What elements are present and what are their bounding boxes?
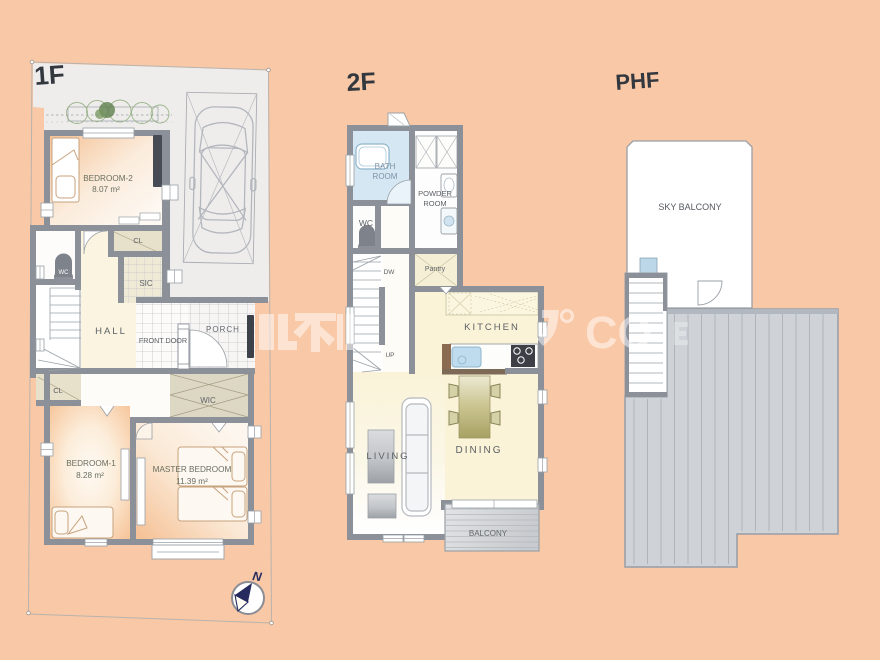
svg-text:UP: UP (385, 352, 394, 359)
svg-text:CO: CO (585, 307, 653, 358)
svg-text:1F: 1F (33, 59, 65, 91)
svg-text:CL: CL (53, 386, 63, 395)
svg-text:POWDER: POWDER (418, 189, 452, 198)
svg-text:MASTER BEDROOM: MASTER BEDROOM (153, 465, 232, 474)
svg-text:WC: WC (359, 218, 373, 228)
svg-text:WC: WC (59, 270, 70, 276)
svg-text:BATH: BATH (375, 162, 396, 171)
svg-text:8.07 m²: 8.07 m² (92, 185, 120, 194)
svg-text:WIC: WIC (200, 396, 216, 405)
svg-text:DW: DW (384, 269, 396, 276)
svg-text:ROOM: ROOM (423, 199, 446, 208)
svg-text:BEDROOM-1: BEDROOM-1 (66, 459, 116, 468)
svg-text:PHF: PHF (615, 67, 661, 95)
svg-text:LIVING: LIVING (366, 451, 409, 462)
svg-text:BEDROOM-2: BEDROOM-2 (83, 174, 133, 183)
svg-text:ROOM: ROOM (373, 172, 398, 181)
svg-text:SIC: SIC (139, 279, 153, 288)
svg-text:SKY BALCONY: SKY BALCONY (658, 202, 721, 212)
svg-text:DINING: DINING (456, 445, 503, 456)
svg-text:8.28 m²: 8.28 m² (76, 471, 104, 480)
svg-text:Pantry: Pantry (425, 266, 446, 273)
svg-text:11.39 m²: 11.39 m² (176, 477, 208, 486)
svg-text:BALCONY: BALCONY (469, 529, 508, 538)
svg-text:PORCH: PORCH (206, 325, 240, 334)
svg-text:2F: 2F (346, 68, 377, 97)
svg-text:KITCHEN: KITCHEN (464, 322, 520, 333)
svg-text:HALL: HALL (95, 326, 127, 337)
svg-text:FRONT DOOR: FRONT DOOR (139, 336, 187, 345)
svg-text:CL: CL (133, 236, 143, 245)
